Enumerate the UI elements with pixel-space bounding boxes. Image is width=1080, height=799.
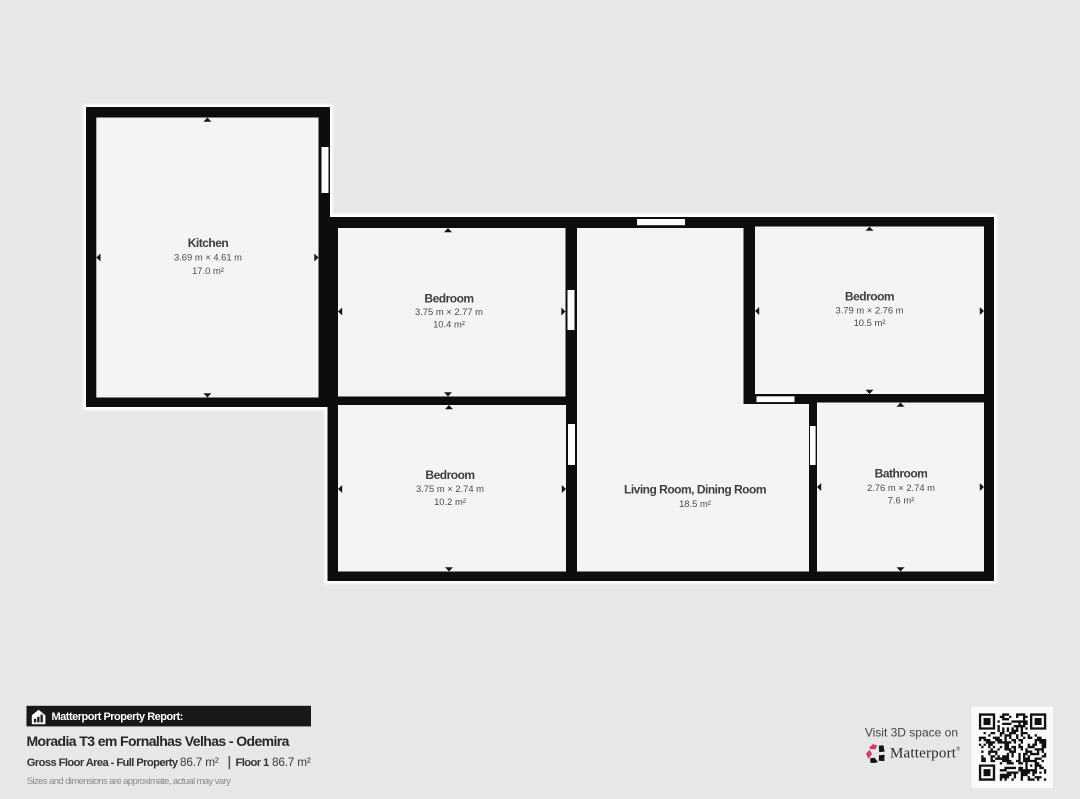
svg-text:Matterport: Matterport — [890, 746, 957, 762]
svg-text:Bathroom: Bathroom — [875, 467, 928, 481]
svg-text:Bedroom: Bedroom — [845, 290, 894, 304]
svg-text:Sizes and dimensions are appro: Sizes and dimensions are approximate, ac… — [27, 776, 231, 787]
svg-text:Gross Floor Area - Full Proper: Gross Floor Area - Full Property — [27, 757, 179, 769]
svg-text:3.69 m × 4.61 m: 3.69 m × 4.61 m — [174, 252, 242, 263]
svg-text:10.2 m²: 10.2 m² — [434, 496, 466, 507]
svg-text:Floor 1: Floor 1 — [236, 757, 269, 769]
svg-text:Living Room, Dining Room: Living Room, Dining Room — [624, 483, 766, 497]
svg-text:Visit 3D space on: Visit 3D space on — [865, 726, 958, 740]
svg-text:Kitchen: Kitchen — [188, 236, 229, 250]
svg-text:10.5 m²: 10.5 m² — [854, 317, 886, 328]
svg-text:10.4 m²: 10.4 m² — [433, 319, 465, 330]
svg-text:3.75 m × 2.74 m: 3.75 m × 2.74 m — [416, 483, 484, 494]
svg-text:7.6 m²: 7.6 m² — [888, 494, 915, 505]
svg-text:2.76 m × 2.74 m: 2.76 m × 2.74 m — [867, 482, 935, 493]
svg-text:86.7 m²: 86.7 m² — [180, 755, 219, 769]
svg-text:3.79 m × 2.76 m: 3.79 m × 2.76 m — [835, 304, 903, 315]
svg-text:17.0 m²: 17.0 m² — [192, 265, 224, 276]
svg-text:®: ® — [957, 746, 961, 753]
svg-text:18.5 m²: 18.5 m² — [679, 498, 711, 509]
svg-text:Bedroom: Bedroom — [425, 468, 474, 482]
svg-text:3.75 m × 2.77 m: 3.75 m × 2.77 m — [415, 306, 483, 317]
svg-text:Matterport Property Report:: Matterport Property Report: — [52, 711, 183, 723]
svg-text:Moradia T3 em Fornalhas Velhas: Moradia T3 em Fornalhas Velhas - Odemira — [27, 733, 290, 749]
svg-text:Bedroom: Bedroom — [424, 292, 473, 306]
svg-text:86.7 m²: 86.7 m² — [272, 755, 311, 769]
